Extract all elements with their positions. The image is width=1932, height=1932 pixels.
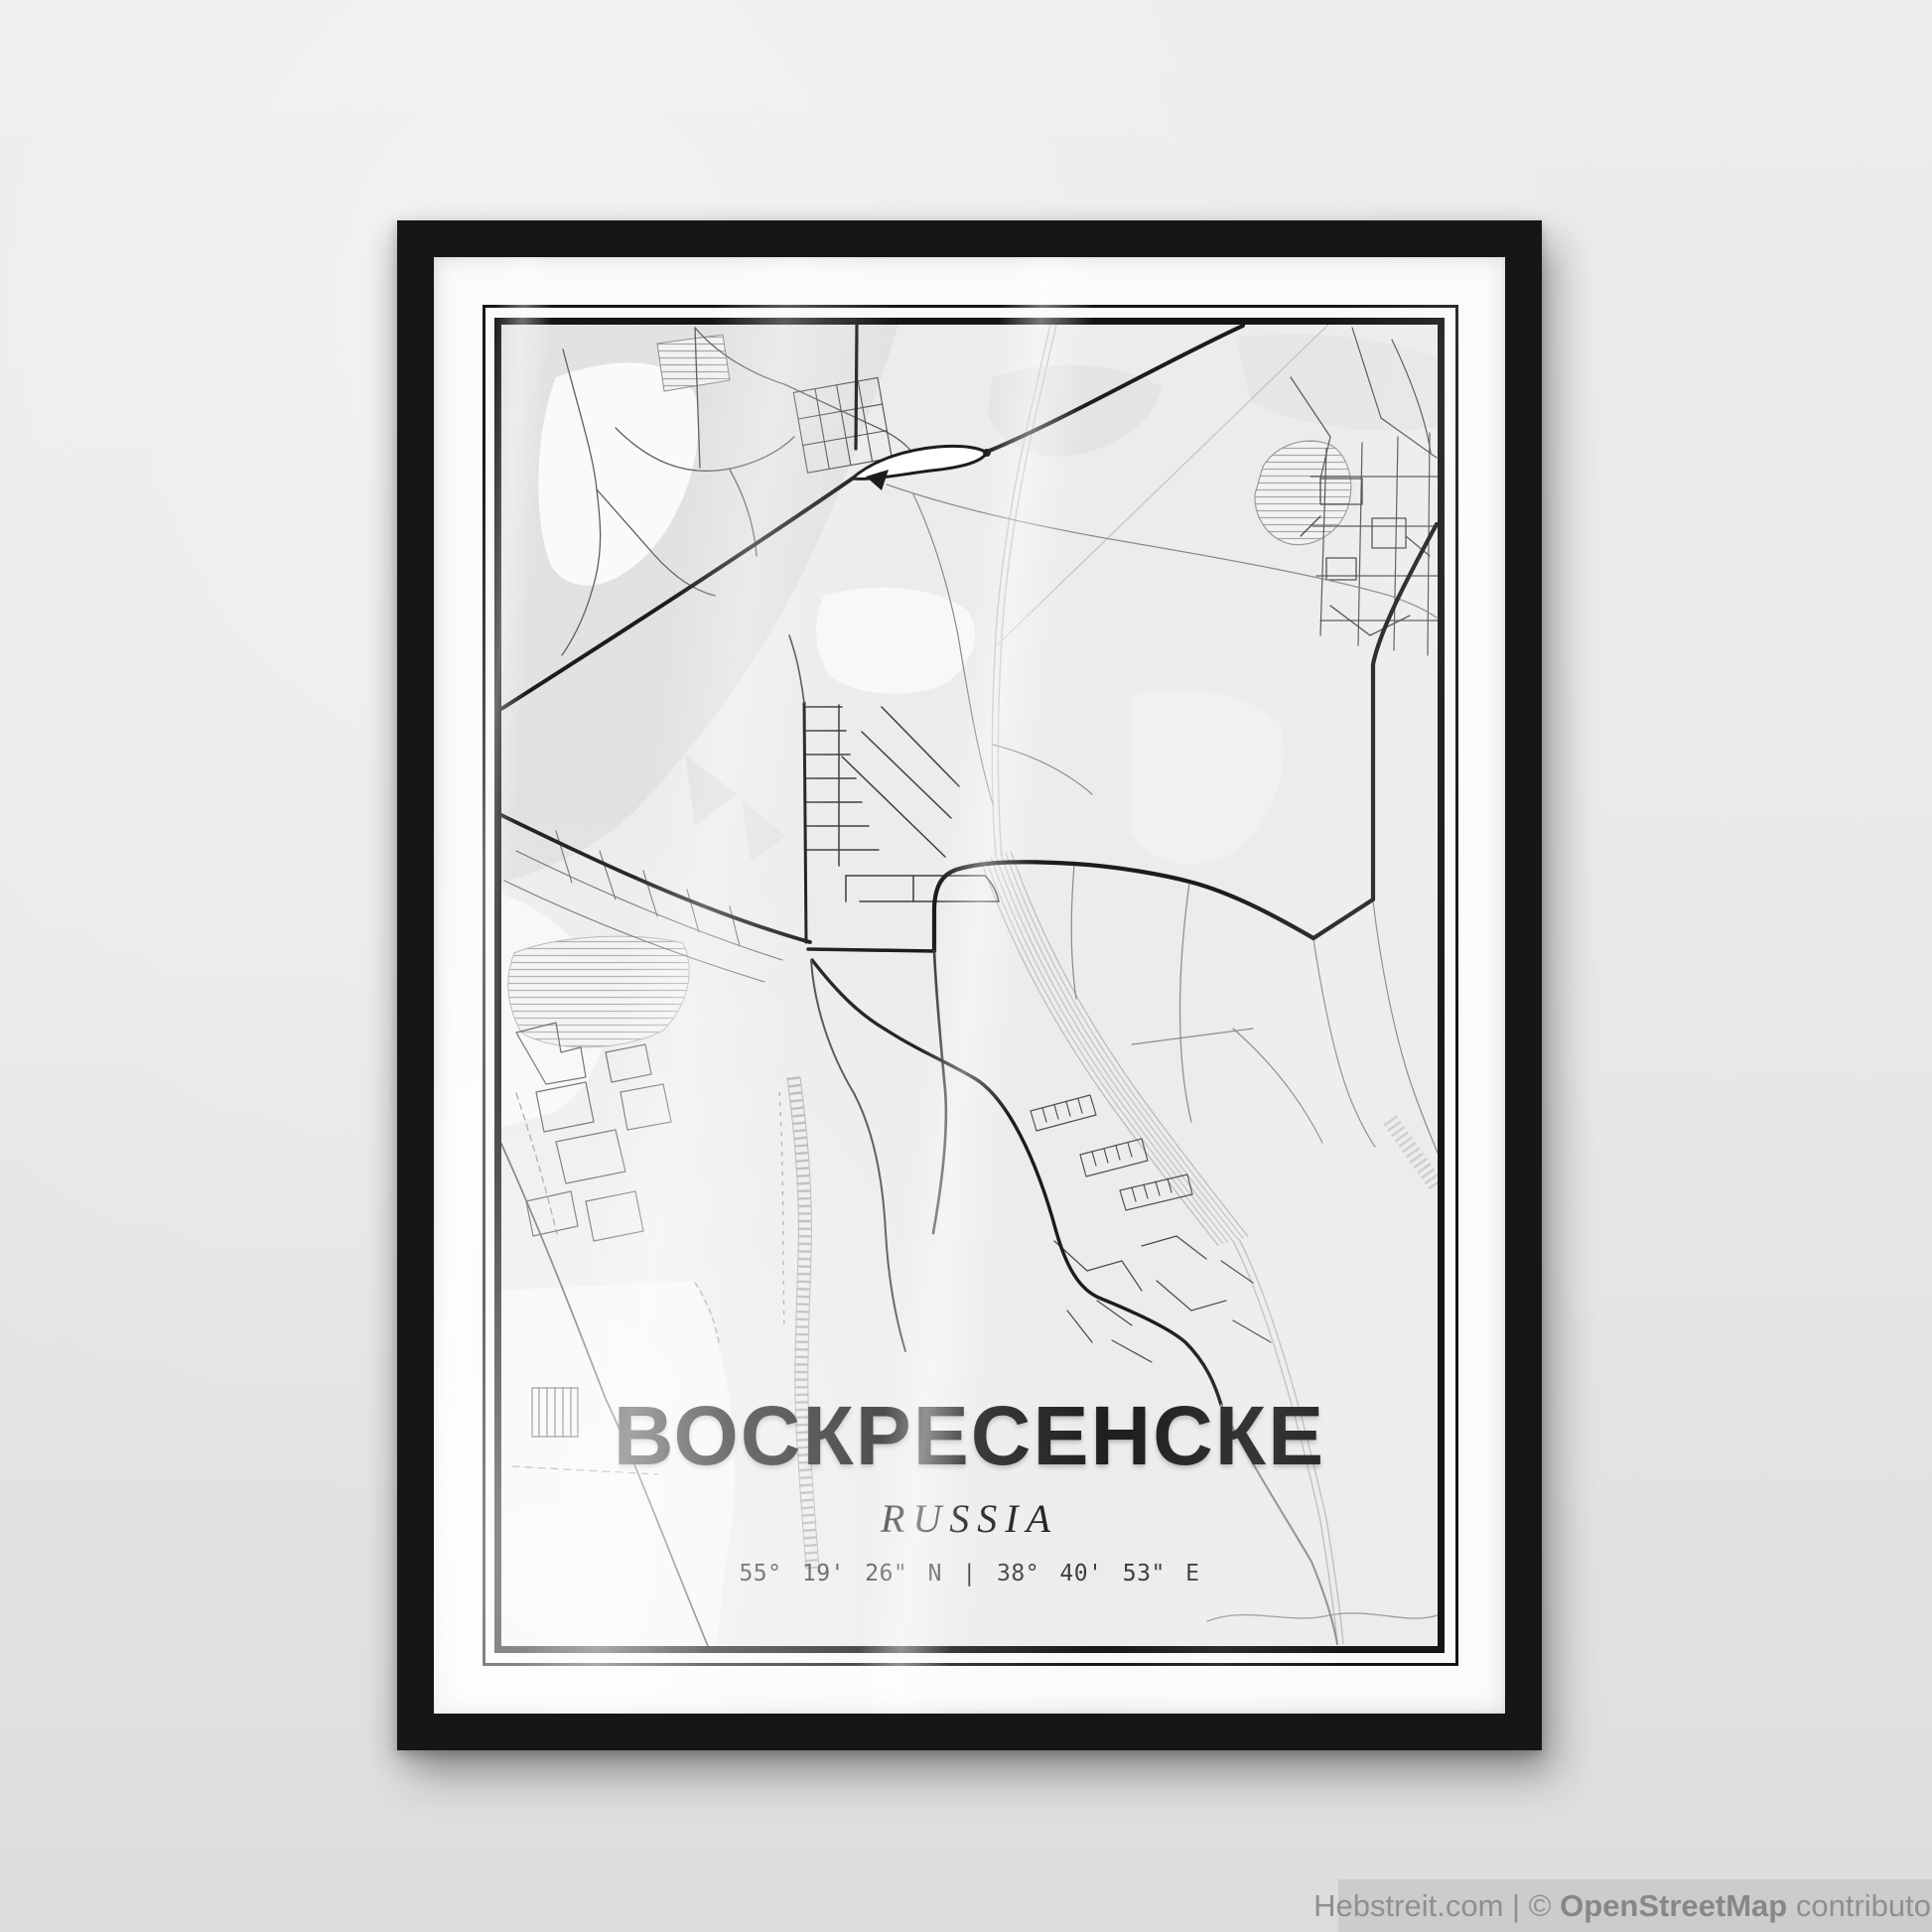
street-map-artwork (501, 325, 1438, 1646)
watermark-suffix: contributors (1787, 1888, 1932, 1924)
watermark-prefix: Hebstreit.com | © (1313, 1888, 1560, 1924)
watermark-bar: Hebstreit.com | © OpenStreetMap contribu… (1338, 1879, 1932, 1932)
framed-map-poster-photo: ВОСКРЕСЕНСКЕ RUSSIA 55° 19' 26" N | 38° … (0, 0, 1932, 1932)
watermark-brand: OpenStreetMap (1560, 1888, 1787, 1924)
